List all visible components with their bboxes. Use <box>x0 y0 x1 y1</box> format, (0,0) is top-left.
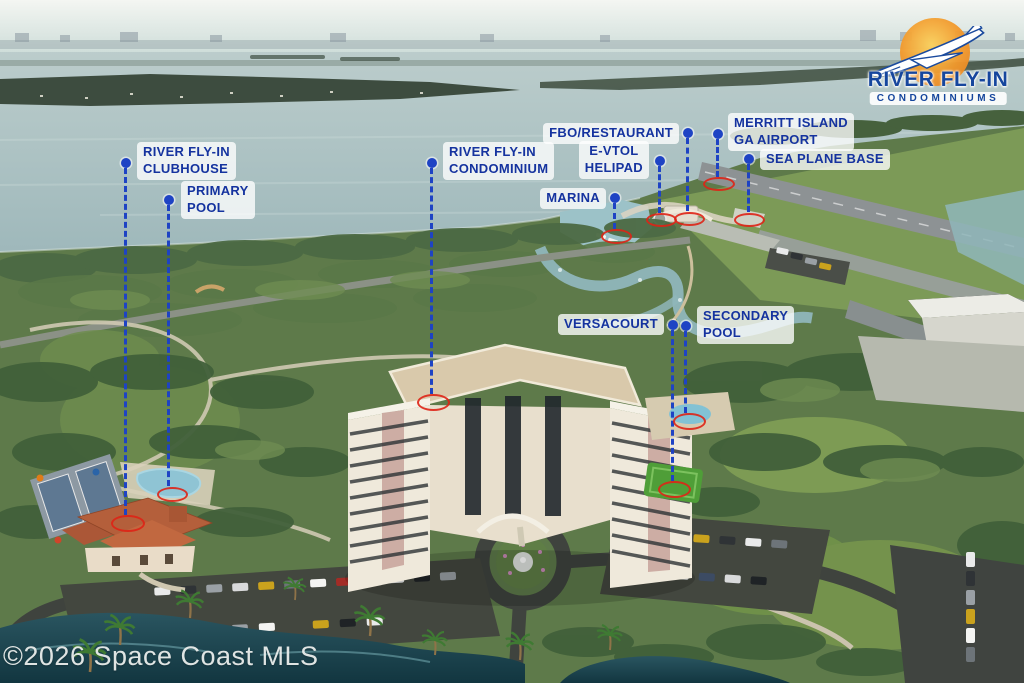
logo-title: RIVER FLY-IN <box>852 68 1024 92</box>
callout-dot <box>681 321 691 331</box>
callout-dot <box>427 158 437 168</box>
label-sea-plane-base: SEA PLANE BASE <box>760 149 890 170</box>
callout-dot <box>683 128 693 138</box>
leader-line <box>124 168 127 515</box>
leader-line <box>684 331 687 413</box>
leader-line <box>716 139 719 177</box>
target-ellipse <box>601 229 632 244</box>
target-ellipse <box>658 481 691 498</box>
label-condominium: RIVER FLY-IN CONDOMINIUM <box>443 142 554 180</box>
callout-dot <box>713 129 723 139</box>
label-marina: MARINA <box>540 188 606 209</box>
target-ellipse <box>703 177 735 191</box>
aerial-site-rendering: RIVER FLY-IN CLUBHOUSE PRIMARY POOL RIVE… <box>0 0 1024 683</box>
leader-line <box>167 205 170 486</box>
callout-dot <box>121 158 131 168</box>
target-ellipse <box>673 413 706 430</box>
logo-subtitle: CONDOMINIUMS <box>870 92 1007 105</box>
parking-lot-far-east <box>890 545 1024 683</box>
callout-dot <box>655 156 665 166</box>
label-ga-airport: MERRITT ISLAND GA AIRPORT <box>728 113 854 151</box>
leader-line <box>671 330 674 481</box>
callout-dot <box>744 154 754 164</box>
target-ellipse <box>417 394 450 411</box>
label-versacourt: VERSACOURT <box>558 314 664 335</box>
leader-line <box>430 168 433 394</box>
target-ellipse <box>646 213 677 227</box>
label-clubhouse: RIVER FLY-IN CLUBHOUSE <box>137 142 236 180</box>
leader-line <box>658 166 661 213</box>
leader-line <box>686 138 689 211</box>
logo: RIVER FLY-IN CONDOMINIUMS <box>852 10 1024 106</box>
label-primary-pool: PRIMARY POOL <box>181 181 255 219</box>
label-secondary-pool: SECONDARY POOL <box>697 306 794 344</box>
leader-line <box>613 203 616 229</box>
watermark: ©2026 Space Coast MLS <box>3 641 319 672</box>
target-ellipse <box>674 212 705 226</box>
target-ellipse <box>734 213 765 227</box>
label-evtol-helipad: E-VTOL HELIPAD <box>579 141 649 179</box>
callout-dot <box>668 320 678 330</box>
leader-line <box>747 164 750 212</box>
target-ellipse <box>111 515 145 532</box>
callout-dot <box>610 193 620 203</box>
callout-dot <box>164 195 174 205</box>
target-ellipse <box>157 487 188 502</box>
